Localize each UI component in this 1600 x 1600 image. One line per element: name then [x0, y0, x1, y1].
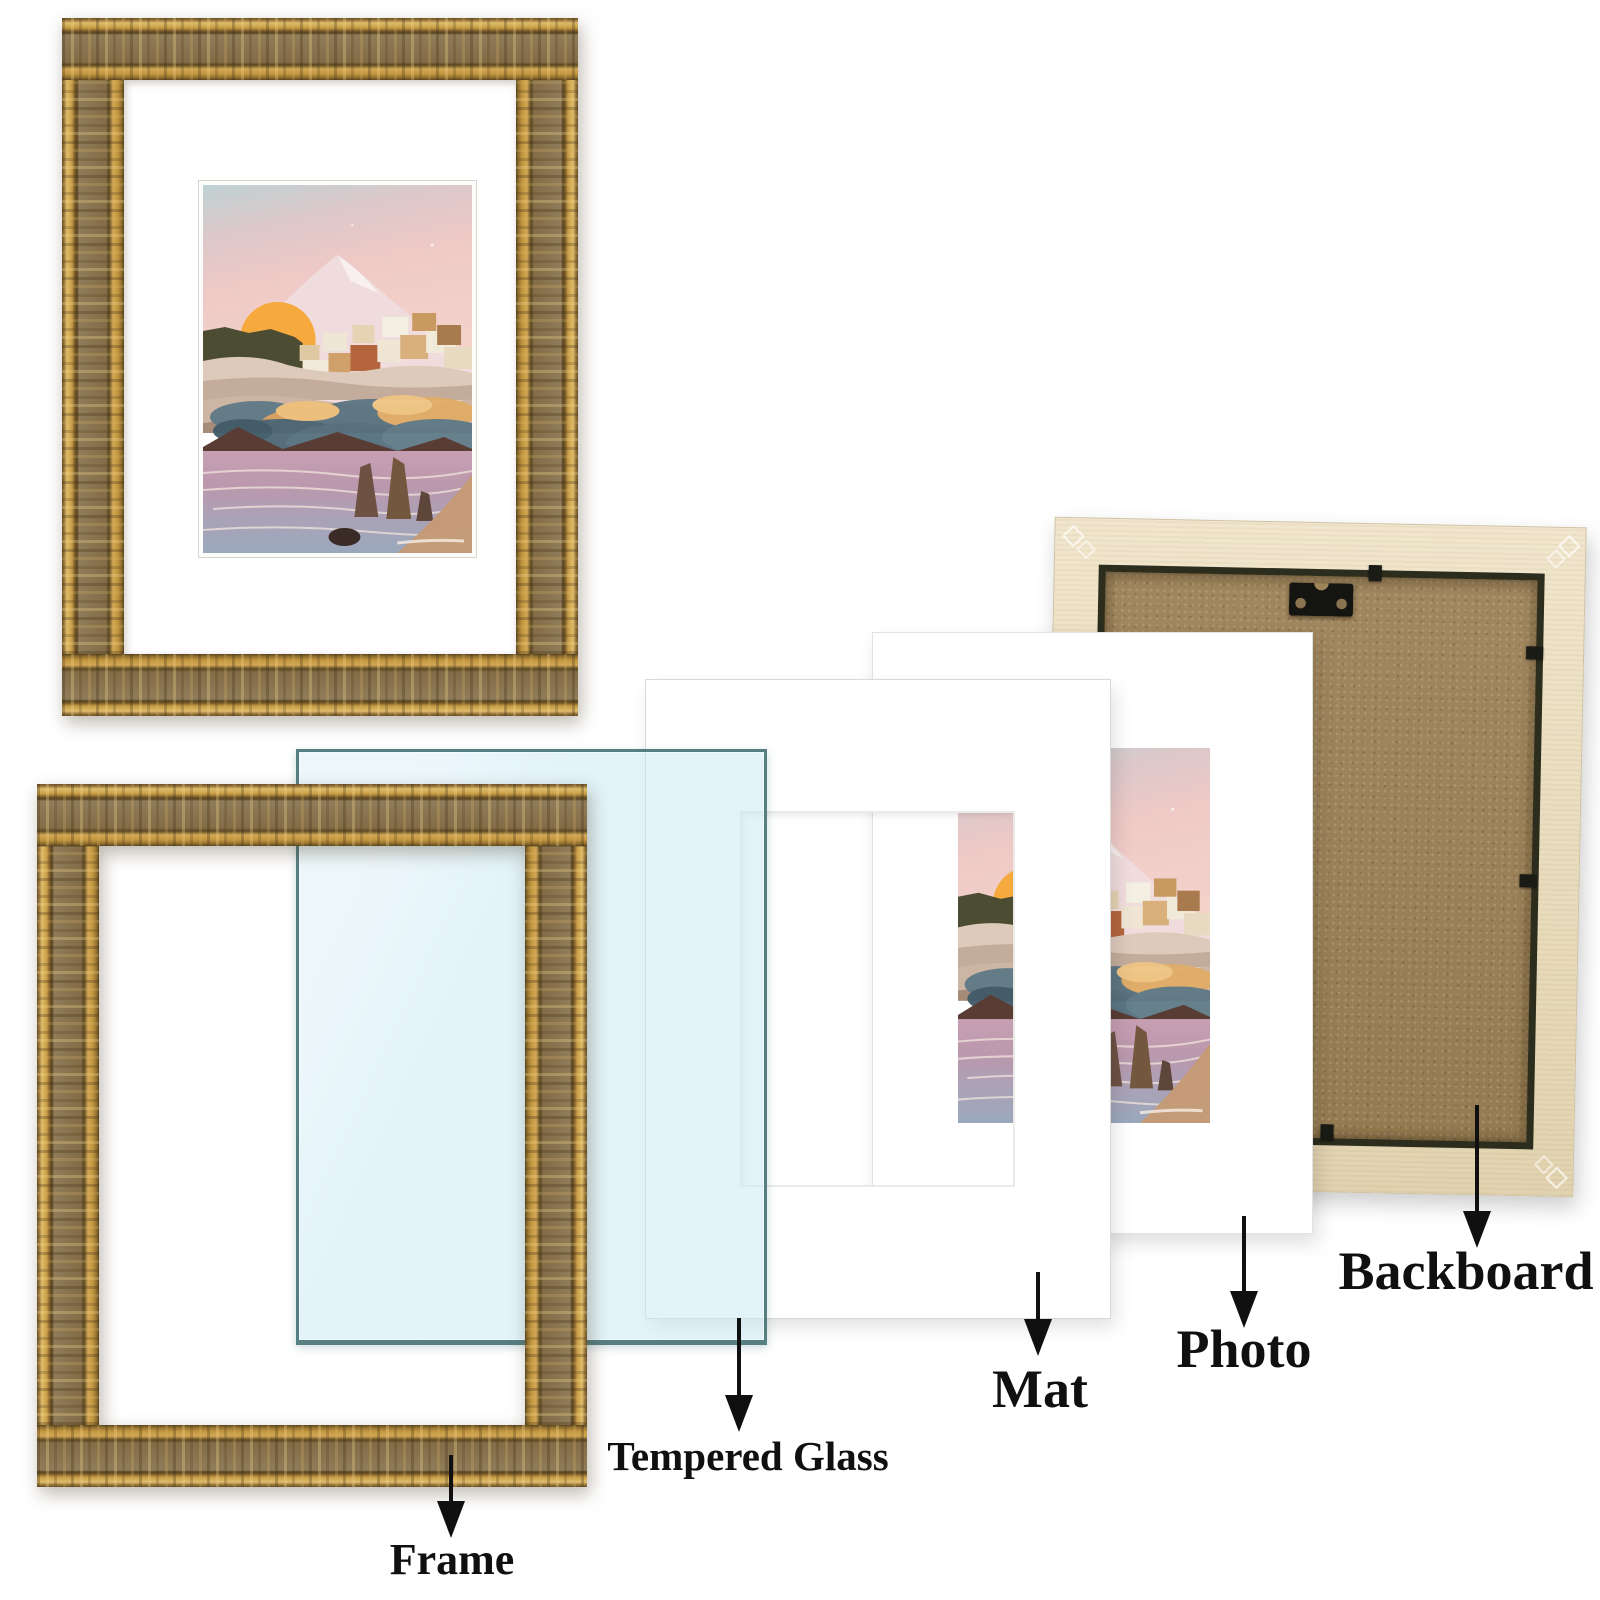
framed-photo-artwork: [203, 185, 472, 553]
corner-stamp-decoration: [1545, 536, 1580, 571]
corner-stamp-decoration: [1532, 1153, 1567, 1188]
retainer-clip: [1519, 874, 1536, 887]
hanging-hardware: [1289, 582, 1354, 616]
backboard-arrow: [1475, 1105, 1479, 1211]
retainer-clip: [1320, 1124, 1333, 1140]
framed-mat: [124, 80, 516, 654]
backboard-label: Backboard: [1338, 1244, 1593, 1298]
frame-arrow: [449, 1455, 453, 1501]
frame-bar: [62, 80, 124, 654]
arrowhead-icon: [1024, 1319, 1052, 1356]
frame-bar: [62, 654, 578, 716]
photo-arrow: [1242, 1216, 1246, 1291]
empty-ornate-frame: [37, 784, 587, 1487]
retainer-clip: [1369, 565, 1382, 581]
frame-bar: [62, 18, 578, 80]
photo-label: Photo: [1177, 1322, 1312, 1376]
product-diagram: Frame Tempered Glass Mat Photo Backboard: [0, 0, 1600, 1600]
tempered-glass-label: Tempered Glass: [607, 1436, 888, 1477]
frame-bar: [516, 80, 578, 654]
frame-bar: [525, 846, 587, 1425]
arrowhead-icon: [725, 1395, 753, 1432]
corner-stamp-decoration: [1063, 526, 1098, 561]
mat-label: Mat: [992, 1362, 1088, 1416]
frame-bar: [37, 784, 587, 846]
frame-bar: [37, 1425, 587, 1487]
arrowhead-icon: [437, 1501, 465, 1538]
frame-label: Frame: [390, 1538, 515, 1582]
mat-window-bevel: [740, 811, 1015, 1187]
tempered-glass-arrow: [737, 1318, 741, 1395]
framed-picture-complete: [62, 18, 578, 716]
mat-arrow: [1036, 1272, 1040, 1319]
frame-bar: [37, 846, 99, 1425]
retainer-clip: [1526, 646, 1543, 659]
